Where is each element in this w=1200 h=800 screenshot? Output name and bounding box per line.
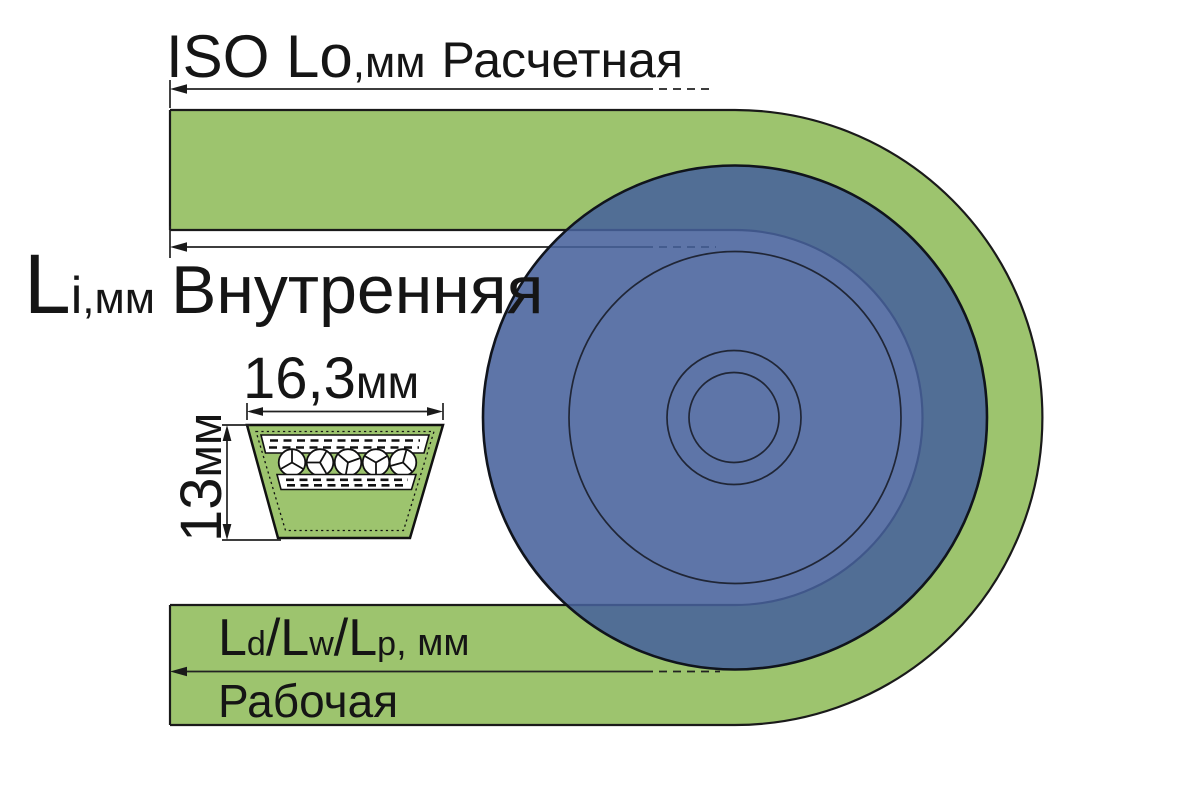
pulley-disc [483,166,987,670]
label-outer-length: ISO Lo,ммРасчетная [166,23,683,90]
label-section-width: 16,3мм [243,346,419,411]
dim-arrow-right-icon [427,407,443,416]
belt-length-diagram: ISO Lo,ммРасчетная Li,ммВнутренняя Ld/Lw… [0,0,1200,800]
cover-band-middle [277,475,416,490]
belt-cross-section: 16,3мм 13мм [169,346,443,542]
label-section-height: 13мм [169,413,234,542]
dimension-section-width: 16,3мм [243,346,443,420]
label-working-length: Рабочая [218,675,398,727]
cord-circles [279,449,417,476]
diagram-canvas: ISO Lo,ммРасчетная Li,ммВнутренняя Ld/Lw… [0,0,1200,800]
dim-arrow-left-icon [170,242,187,252]
label-inner-length: Li,ммВнутренняя [24,237,543,331]
